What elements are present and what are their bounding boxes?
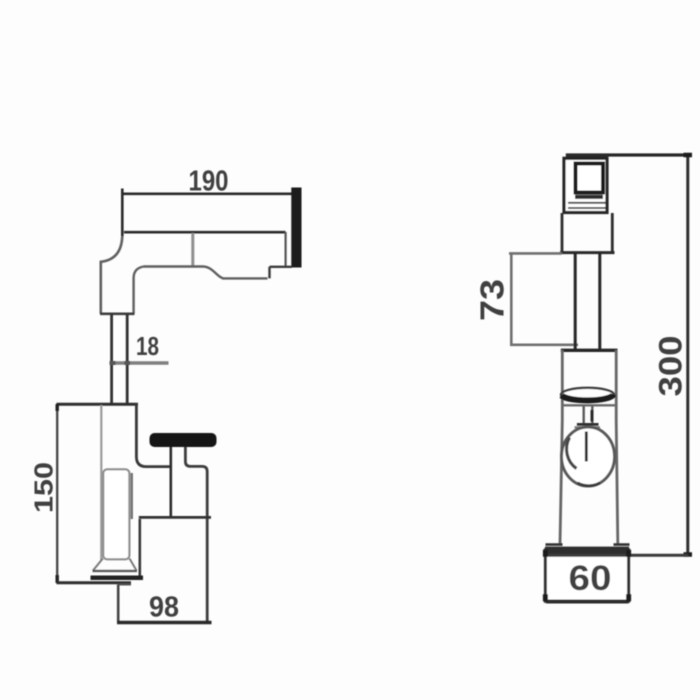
svg-text:150: 150: [29, 462, 59, 513]
svg-text:73: 73: [474, 279, 511, 321]
svg-text:98: 98: [149, 592, 179, 624]
svg-text:18: 18: [136, 331, 159, 361]
svg-text:60: 60: [569, 559, 612, 598]
svg-text:300: 300: [653, 336, 689, 397]
